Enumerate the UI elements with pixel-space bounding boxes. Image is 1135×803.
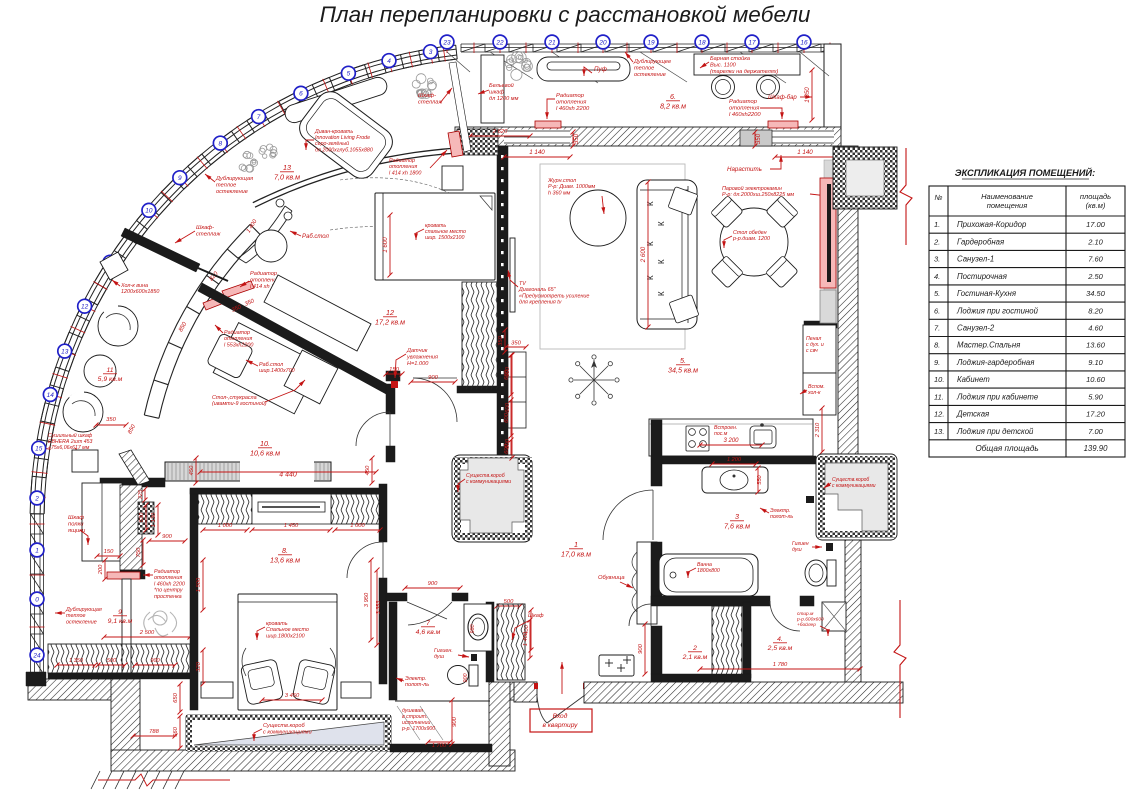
svg-text:отопления: отопления <box>154 575 182 581</box>
svg-text:8: 8 <box>218 141 222 148</box>
svg-text:225: 225 <box>138 489 144 500</box>
svg-text:2.10: 2.10 <box>1087 237 1103 246</box>
svg-text:4,6 кв.м: 4,6 кв.м <box>416 629 441 636</box>
svg-text:900: 900 <box>162 534 172 540</box>
svg-text:Н=1.000: Н=1.000 <box>407 361 429 367</box>
svg-text:3 950: 3 950 <box>364 592 370 607</box>
svg-text:17: 17 <box>748 39 756 46</box>
svg-text:отопления: отопления <box>389 164 417 170</box>
svg-text:900: 900 <box>452 716 458 726</box>
svg-text:1 700: 1 700 <box>432 743 447 749</box>
svg-text:8.20: 8.20 <box>1088 306 1103 315</box>
svg-text:ЭКСПЛИКАЦИЯ ПОМЕЩЕНИЙ:: ЭКСПЛИКАЦИЯ ПОМЕЩЕНИЙ: <box>955 167 1095 178</box>
svg-text:l 553xh2200: l 553xh2200 <box>224 342 253 348</box>
svg-text:10.60: 10.60 <box>1086 375 1106 384</box>
svg-text:8,2 кв.м: 8,2 кв.м <box>660 101 686 110</box>
svg-text:остекление: остекление <box>634 72 666 78</box>
svg-text:Шкаф-: Шкаф- <box>196 225 214 231</box>
svg-text:200: 200 <box>98 564 104 575</box>
svg-text:К: К <box>657 291 666 296</box>
svg-text:с коммуникациями: с коммуникациями <box>263 729 312 735</box>
svg-text:Наименование: Наименование <box>981 192 1033 201</box>
svg-text:«Предусмотреть усиление: «Предусмотреть усиление <box>519 293 589 299</box>
svg-text:К: К <box>646 241 655 246</box>
svg-text:3: 3 <box>735 512 739 521</box>
svg-text:9: 9 <box>178 175 182 182</box>
svg-text:Радиатор: Радиатор <box>224 330 250 336</box>
svg-text:Пуф: Пуф <box>594 66 607 73</box>
svg-text:Innovation Living Frode: Innovation Living Frode <box>315 135 370 141</box>
svg-text:7,6 кв.м: 7,6 кв.м <box>724 521 750 530</box>
svg-text:16: 16 <box>800 39 808 46</box>
svg-text:11: 11 <box>106 367 113 374</box>
svg-text:Мастер.Спальня: Мастер.Спальня <box>957 341 1021 350</box>
svg-text:Санузел-1: Санузел-1 <box>957 255 994 264</box>
svg-text:Паровой электрокамин: Паровой электрокамин <box>722 185 782 192</box>
svg-text:8.: 8. <box>934 341 940 350</box>
svg-text:17,2 кв.м: 17,2 кв.м <box>375 317 405 326</box>
svg-text:750: 750 <box>136 547 142 557</box>
svg-text:Радиатор: Радиатор <box>556 93 585 99</box>
svg-text:1200x600x1850: 1200x600x1850 <box>121 289 159 295</box>
svg-text:4.: 4. <box>777 636 783 643</box>
svg-text:9.10: 9.10 <box>1088 358 1103 367</box>
svg-text:6.: 6. <box>934 306 940 315</box>
svg-text:с коммуникациями: с коммуникациями <box>466 479 511 485</box>
svg-text:34.50: 34.50 <box>1086 289 1106 298</box>
svg-text:Постирочная: Постирочная <box>957 272 1008 281</box>
svg-text:хол-к: хол-к <box>807 390 821 396</box>
svg-text:350: 350 <box>755 133 762 144</box>
svg-text:22: 22 <box>495 39 504 46</box>
svg-text:2,1 кв.м: 2,1 кв.м <box>682 654 708 661</box>
svg-text:простенка: простенка <box>154 594 182 600</box>
svg-text:450: 450 <box>189 465 195 475</box>
svg-text:(ивамти-9 гостиной): (ивамти-9 гостиной) <box>212 400 267 407</box>
svg-text:1 500: 1 500 <box>196 577 202 592</box>
svg-text:17,0 кв.м: 17,0 кв.м <box>561 549 591 558</box>
svg-text:площадь: площадь <box>1080 192 1111 201</box>
svg-text:шир.1400x700: шир.1400x700 <box>259 368 295 374</box>
svg-text:1 130: 1 130 <box>151 512 157 527</box>
svg-text:Дублирующая: Дублирующая <box>65 607 102 613</box>
svg-text:р-р.диам. 1200: р-р.диам. 1200 <box>732 236 770 242</box>
svg-text:Детская: Детская <box>956 410 990 419</box>
svg-text:1: 1 <box>574 540 578 549</box>
svg-text:теплое: теплое <box>216 182 236 188</box>
svg-text:1.: 1. <box>934 220 940 229</box>
svg-text:788: 788 <box>149 729 159 735</box>
svg-text:11.: 11. <box>934 392 944 401</box>
svg-text:Существ.короб: Существ.короб <box>263 723 305 729</box>
svg-text:Обувница: Обувница <box>598 575 625 581</box>
svg-text:дл 2000xглуб.1055x880: дл 2000xглуб.1055x880 <box>315 147 373 153</box>
svg-text:530: 530 <box>139 512 145 522</box>
svg-text:отопления: отопления <box>224 336 252 342</box>
svg-text:150: 150 <box>389 367 399 373</box>
svg-text:23: 23 <box>442 39 451 46</box>
svg-text:Дублирующая: Дублирующая <box>215 176 253 182</box>
svg-text:3.: 3. <box>934 255 940 264</box>
svg-text:шир.1800x2100: шир.1800x2100 <box>266 633 305 639</box>
svg-text:в квартиру: в квартиру <box>543 722 579 729</box>
svg-text:7,0 кв.м: 7,0 кв.м <box>274 172 300 181</box>
svg-text:Радиатор: Радиатор <box>389 158 415 164</box>
svg-text:350: 350 <box>573 133 580 144</box>
svg-text:10.: 10. <box>934 375 944 384</box>
svg-text:1: 1 <box>35 547 39 554</box>
svg-text:К: К <box>657 221 666 226</box>
svg-text:остекление: остекление <box>216 189 248 195</box>
svg-text:К: К <box>646 275 655 280</box>
svg-text:5.: 5. <box>680 356 686 365</box>
svg-text:980: 980 <box>470 625 476 634</box>
svg-text:1 200: 1 200 <box>727 457 742 463</box>
svg-text:1 350: 1 350 <box>69 658 84 664</box>
svg-text:полки: полки <box>68 522 84 528</box>
svg-text:2,5 кв.м: 2,5 кв.м <box>767 645 793 652</box>
svg-text:6.: 6. <box>670 92 676 101</box>
svg-text:Хол-к вина: Хол-к вина <box>120 283 148 289</box>
svg-text:600: 600 <box>505 402 511 412</box>
svg-text:0: 0 <box>35 596 39 603</box>
svg-text:отопления: отопления <box>729 106 759 112</box>
svg-text:р-р.600x600: р-р.600x600 <box>796 617 824 623</box>
svg-text:остекление: остекление <box>66 619 97 625</box>
svg-text:Диван-кровать: Диван-кровать <box>314 129 353 135</box>
svg-text:Стол-,стукрасла: Стол-,стукрасла <box>212 395 257 401</box>
svg-text:4 440: 4 440 <box>279 472 297 479</box>
svg-text:с коммуникациями: с коммуникациями <box>832 483 876 489</box>
svg-text:Раб.стол: Раб.стол <box>302 234 330 240</box>
svg-text:4.: 4. <box>934 272 940 281</box>
svg-text:Р-р: Диам. 1000мм: Р-р: Диам. 1000мм <box>548 184 596 190</box>
svg-text:полот-ль: полот-ль <box>405 682 429 688</box>
svg-text:7.: 7. <box>934 323 940 332</box>
svg-text:5.90: 5.90 <box>1088 392 1103 401</box>
svg-text:13: 13 <box>283 163 291 172</box>
svg-text:2: 2 <box>34 495 39 502</box>
svg-text:9,1 кв.м: 9,1 кв.м <box>108 618 133 625</box>
svg-text:350: 350 <box>498 335 504 345</box>
svg-text:13.60: 13.60 <box>1086 341 1106 350</box>
svg-text:10,6 кв.м: 10,6 кв.м <box>250 448 280 457</box>
svg-text:4.60: 4.60 <box>1088 323 1103 332</box>
svg-text:3 200: 3 200 <box>723 438 739 444</box>
svg-text:Дублирующее: Дублирующее <box>633 59 671 65</box>
svg-text:Лоджия при кабинете: Лоджия при кабинете <box>956 392 1039 401</box>
svg-text:900: 900 <box>150 658 160 664</box>
svg-text:650: 650 <box>173 692 179 702</box>
svg-text:душ: душ <box>434 654 445 660</box>
svg-text:8.: 8. <box>282 546 288 555</box>
svg-text:600: 600 <box>505 438 511 448</box>
svg-text:3: 3 <box>429 49 433 56</box>
svg-text:1 000: 1 000 <box>218 523 233 529</box>
svg-text:1 000: 1 000 <box>350 523 365 529</box>
svg-text:7.60: 7.60 <box>1088 255 1103 264</box>
svg-text:Общая площадь: Общая площадь <box>975 444 1038 453</box>
svg-text:350: 350 <box>106 417 116 423</box>
svg-text:Нарастить: Нарастить <box>727 166 762 173</box>
svg-text:1 450: 1 450 <box>284 523 299 529</box>
svg-text:450: 450 <box>365 465 371 475</box>
svg-text:Кабинет: Кабинет <box>957 375 990 384</box>
svg-text:9.: 9. <box>934 358 940 367</box>
svg-text:для крепления tv: для крепления tv <box>519 300 562 306</box>
svg-text:*по центру: *по центру <box>154 588 183 594</box>
svg-text:шир. 1500x2100: шир. 1500x2100 <box>425 235 465 241</box>
svg-text:помещения: помещения <box>987 201 1027 210</box>
svg-text:5,9 кв.м: 5,9 кв.м <box>98 376 123 383</box>
svg-text:17.20: 17.20 <box>1086 410 1106 419</box>
svg-text:кровать: кровать <box>266 621 288 627</box>
svg-text:Стол обеден: Стол обеден <box>733 230 767 236</box>
svg-text:2 600: 2 600 <box>640 246 647 263</box>
svg-text:2.50: 2.50 <box>1087 272 1103 281</box>
svg-text:Радиатор: Радиатор <box>154 569 180 575</box>
svg-text:Шкаф: Шкаф <box>68 515 84 521</box>
svg-text:теплое: теплое <box>66 613 86 619</box>
svg-text:К: К <box>646 201 655 206</box>
svg-text:9: 9 <box>118 609 122 616</box>
svg-text:10: 10 <box>145 208 153 215</box>
svg-text:900: 900 <box>463 674 469 683</box>
svg-text:Выс. 1100: Выс. 1100 <box>710 62 737 68</box>
svg-text:900: 900 <box>638 643 644 653</box>
svg-text:l 460xh2200: l 460xh2200 <box>729 112 761 118</box>
svg-text:660: 660 <box>173 726 179 736</box>
svg-text:Шкаф: Шкаф <box>528 613 544 619</box>
svg-text:14: 14 <box>47 392 55 399</box>
svg-text:l 460xh 2200: l 460xh 2200 <box>556 106 590 112</box>
svg-text:7.00: 7.00 <box>1088 427 1103 436</box>
svg-text:10.: 10. <box>260 439 270 448</box>
svg-text:6: 6 <box>299 91 303 98</box>
svg-text:стеллаж: стеллаж <box>418 100 444 106</box>
svg-text:Сушильный шкаф: Сушильный шкаф <box>48 432 93 439</box>
svg-text:13: 13 <box>61 349 69 356</box>
svg-text:3 353: 3 353 <box>376 601 382 615</box>
svg-text:550: 550 <box>757 474 763 484</box>
svg-text:Санузел-2: Санузел-2 <box>957 323 995 332</box>
svg-text:34,5 кв.м: 34,5 кв.м <box>668 365 698 374</box>
svg-text:увлажнения: увлажнения <box>406 354 438 360</box>
svg-text:спальное место: спальное место <box>425 229 466 235</box>
svg-text:2.: 2. <box>933 237 940 246</box>
svg-text:l 414 xh 1800: l 414 xh 1800 <box>389 170 421 176</box>
svg-text:дл 1200 мм: дл 1200 мм <box>489 96 519 102</box>
svg-text:Шкаф-: Шкаф- <box>418 93 436 99</box>
svg-text:18: 18 <box>698 39 706 46</box>
svg-text:Шкаф-бар: Шкаф-бар <box>768 95 797 101</box>
svg-text:(тарелки на держателях): (тарелки на держателях) <box>710 69 779 75</box>
svg-text:13,6 кв.м: 13,6 кв.м <box>270 555 300 564</box>
svg-text:150: 150 <box>104 549 114 555</box>
svg-text:р-р. 1700x900: р-р. 1700x900 <box>401 726 435 732</box>
svg-text:1 140: 1 140 <box>797 149 813 156</box>
svg-text:серо-зелёный: серо-зелёный <box>315 140 349 147</box>
svg-text:h 360 мм: h 360 мм <box>548 190 571 196</box>
svg-text:Р-р: дл.2000xш.250x8225 мм: Р-р: дл.2000xш.250x8225 мм <box>722 192 794 198</box>
svg-text:2 310: 2 310 <box>815 422 821 438</box>
svg-text:2 620: 2 620 <box>492 129 508 135</box>
svg-text:отопления: отопления <box>556 100 586 106</box>
svg-text:Лоджия-гардеробная: Лоджия-гардеробная <box>956 358 1035 367</box>
svg-text:1 350: 1 350 <box>804 87 811 103</box>
svg-text:1 780: 1 780 <box>773 662 788 668</box>
svg-text:900: 900 <box>428 375 438 381</box>
svg-text:План перепланировки с расстано: План перепланировки с расстановкой мебел… <box>320 2 811 27</box>
svg-text:+бойлер: +бойлер <box>797 621 816 628</box>
svg-text:5.: 5. <box>934 289 940 298</box>
svg-text:Радиатор: Радиатор <box>250 271 277 277</box>
svg-text:шкаф: шкаф <box>489 89 504 95</box>
svg-text:1 600: 1 600 <box>382 237 389 253</box>
svg-text:душ: душ <box>792 547 802 553</box>
svg-text:15: 15 <box>35 446 43 453</box>
svg-text:Бельевой: Бельевой <box>489 82 514 89</box>
svg-text:21: 21 <box>547 39 556 46</box>
svg-text:19: 19 <box>647 39 655 46</box>
svg-text:2: 2 <box>692 645 697 652</box>
svg-text:1 140: 1 140 <box>529 149 545 156</box>
svg-text:7: 7 <box>426 620 430 627</box>
svg-text:13.: 13. <box>934 427 944 436</box>
svg-text:12.: 12. <box>934 410 944 419</box>
svg-text:Датчик: Датчик <box>406 348 428 354</box>
svg-text:теплое: теплое <box>634 65 654 71</box>
svg-text:Раб.стол: Раб.стол <box>259 362 283 368</box>
svg-text:стир.м: стир.м <box>797 612 814 617</box>
svg-text:7: 7 <box>257 114 261 121</box>
svg-text:Радиатор: Радиатор <box>729 99 758 105</box>
svg-text:Прихожая-Коридор: Прихожая-Коридор <box>957 220 1027 229</box>
svg-text:Журн.стол: Журн.стол <box>547 178 576 184</box>
svg-text:кровать: кровать <box>425 223 446 229</box>
svg-text:стеллаж: стеллаж <box>196 232 222 238</box>
svg-text:3 450: 3 450 <box>285 693 300 699</box>
svg-text:4: 4 <box>387 58 391 65</box>
svg-text:12: 12 <box>386 308 394 317</box>
svg-text:1 400: 1 400 <box>523 631 529 646</box>
svg-text:Барная стойка: Барная стойка <box>710 55 750 62</box>
svg-text:Спальное место: Спальное место <box>266 627 309 633</box>
svg-text:№: № <box>934 193 942 202</box>
svg-text:20: 20 <box>598 39 607 46</box>
svg-text:600: 600 <box>504 412 510 422</box>
svg-text:Вход: Вход <box>553 712 568 720</box>
svg-text:1800x800: 1800x800 <box>697 568 720 574</box>
svg-text:(кв.м): (кв.м) <box>1086 201 1106 210</box>
svg-text:500: 500 <box>107 658 117 664</box>
svg-text:2 500: 2 500 <box>139 630 155 636</box>
svg-text:Электр.: Электр. <box>405 676 426 682</box>
svg-text:12: 12 <box>81 304 89 311</box>
svg-text:Гостиная-Кухня: Гостиная-Кухня <box>957 289 1017 298</box>
svg-text:600: 600 <box>505 366 511 376</box>
svg-text:139.90: 139.90 <box>1084 444 1109 453</box>
svg-text:17.00: 17.00 <box>1086 220 1106 229</box>
svg-text:полот-ль: полот-ль <box>770 514 793 520</box>
svg-text:пос.м: пос.м <box>714 431 728 437</box>
svg-text:24: 24 <box>32 652 41 659</box>
svg-text:ящики: ящики <box>67 528 86 534</box>
svg-text:с свч: с свч <box>806 348 818 354</box>
svg-text:Диагональ 65": Диагональ 65" <box>518 287 557 293</box>
svg-text:К: К <box>657 259 666 264</box>
svg-text:l 460xh 2200: l 460xh 2200 <box>154 581 185 587</box>
svg-text:900: 900 <box>428 581 438 587</box>
svg-text:5: 5 <box>347 71 351 78</box>
svg-text:Лоджия при детской: Лоджия при детской <box>956 427 1034 436</box>
svg-text:Гардеробная: Гардеробная <box>957 237 1005 246</box>
svg-text:Гигиен.: Гигиен. <box>434 648 453 654</box>
svg-text:Лоджия при гостиной: Лоджия при гостиной <box>956 306 1039 315</box>
svg-text:350: 350 <box>511 341 521 347</box>
svg-text:320: 320 <box>196 661 202 671</box>
